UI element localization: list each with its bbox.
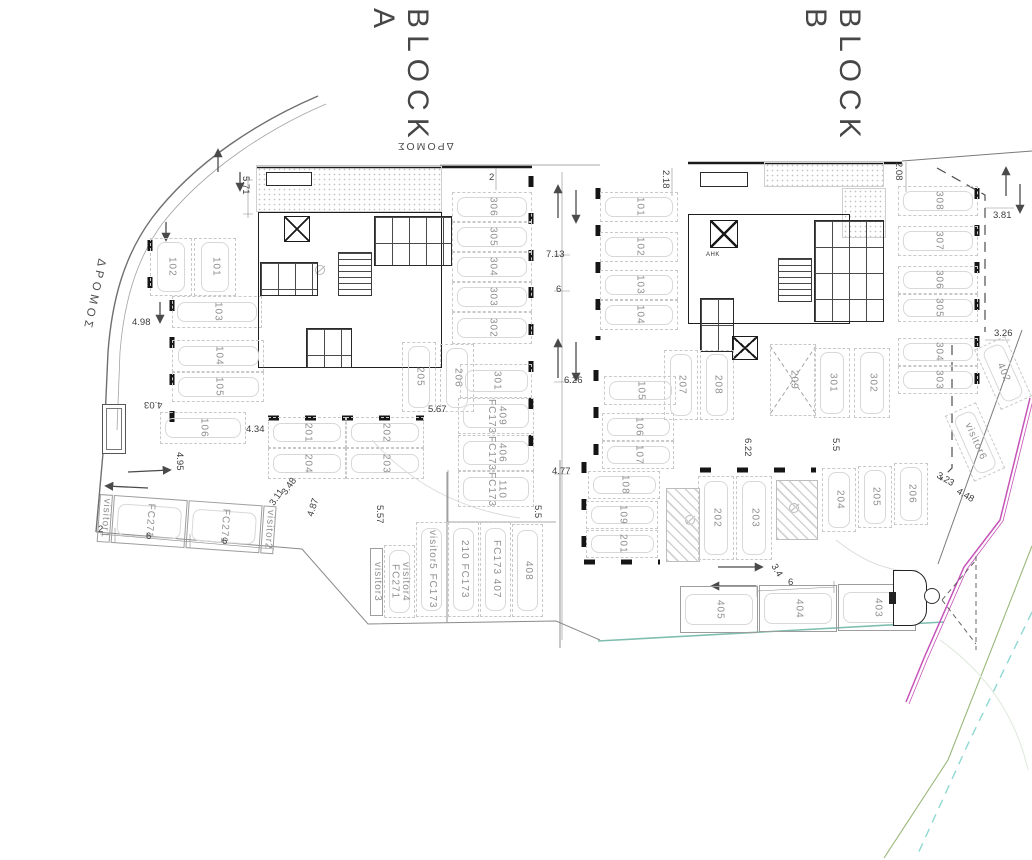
parking-space: 303 bbox=[898, 366, 978, 394]
dimension-label: 7.13 bbox=[546, 249, 565, 260]
parking-space: 204 bbox=[268, 448, 346, 479]
dimension-label: 4.03 bbox=[144, 399, 163, 410]
parking-space: 302 bbox=[452, 312, 532, 344]
parking-space-crossed: 209 bbox=[770, 344, 816, 416]
lift-a-icon bbox=[284, 216, 310, 242]
parking-space: 306 bbox=[898, 266, 978, 294]
parking-space: 408 bbox=[512, 524, 543, 617]
parking-space: 203 bbox=[346, 448, 424, 479]
storage-cells-b2 bbox=[700, 298, 734, 352]
parking-space: visitor5 FC173 bbox=[416, 522, 447, 617]
parking-space: 201 bbox=[268, 417, 346, 448]
landscape-curve bbox=[836, 540, 918, 571]
parking-space: FC173 407 bbox=[480, 522, 511, 617]
parking-floor-plan: BLOCK A BLOCK B ΔΡΟΜΟΣ ΔΡΟΜΟΣ ΑΗΚ 102 10… bbox=[0, 0, 1032, 860]
parking-space: 306 bbox=[452, 192, 532, 222]
stairs-b-icon bbox=[778, 258, 812, 302]
lift-b2-icon bbox=[732, 336, 758, 360]
top-right-boundary bbox=[902, 151, 1032, 161]
hatch-zone-b2 bbox=[776, 480, 818, 540]
parking-space: 101 bbox=[600, 192, 678, 222]
dimension-label: 6.26 bbox=[564, 375, 583, 386]
dimension-label: 6 bbox=[222, 536, 227, 547]
storage-cells-a2 bbox=[260, 262, 318, 296]
parking-space: 303 bbox=[452, 282, 532, 312]
parking-space: 102 bbox=[600, 232, 678, 262]
storage-cells-a1 bbox=[374, 216, 452, 266]
utility-box bbox=[102, 404, 126, 454]
parking-space: 301 bbox=[460, 364, 532, 398]
road-label-top: ΔΡΟΜΟΣ bbox=[396, 140, 454, 152]
parking-space: 404 bbox=[759, 585, 837, 632]
parking-space: 308 bbox=[898, 186, 978, 216]
block-a-title: BLOCK A bbox=[366, 8, 434, 158]
parking-space: 206 bbox=[894, 463, 928, 525]
dimension-label: 5.67 bbox=[428, 404, 447, 415]
parking-space: 302 bbox=[854, 348, 890, 418]
block-b-title: BLOCK B bbox=[798, 8, 866, 158]
dimension-label: 4.95 bbox=[174, 452, 185, 471]
parking-space: 204 bbox=[822, 468, 856, 532]
dimension-label: 4.77 bbox=[552, 466, 571, 477]
parking-space: 103 bbox=[600, 270, 678, 300]
parking-space: 102 bbox=[150, 238, 192, 296]
lift-b-icon bbox=[710, 220, 738, 248]
entry-gate-circle bbox=[924, 588, 940, 604]
dimension-label: 6 bbox=[146, 531, 151, 542]
parking-space: 207 bbox=[664, 350, 698, 420]
parking-space: 406 FC173 bbox=[458, 435, 534, 471]
parking-space: visitor2 bbox=[260, 505, 276, 554]
parking-space: 201 bbox=[586, 530, 658, 558]
cyan-dashed-line bbox=[916, 612, 1032, 858]
dimension-label: 3.26 bbox=[994, 328, 1013, 339]
ahk-room-label: ΑΗΚ bbox=[706, 252, 720, 258]
parking-space: 109 bbox=[586, 501, 658, 529]
parking-space: visitor4 FC271 bbox=[384, 545, 415, 618]
dimension-label: 4.34 bbox=[246, 424, 265, 435]
storage-cells-a3 bbox=[306, 328, 352, 368]
dimension-label: 5.71 bbox=[240, 176, 251, 195]
parking-space: 104 bbox=[600, 300, 678, 330]
parking-space: 105 bbox=[172, 372, 264, 402]
dimension-label: 2 bbox=[98, 524, 103, 535]
dimension-label: 4.98 bbox=[132, 317, 151, 328]
parking-space: 304 bbox=[898, 338, 978, 366]
dimension-label: 5.5 bbox=[532, 505, 543, 518]
parking-space: 106 bbox=[160, 412, 246, 444]
landscape-curve bbox=[940, 640, 1028, 770]
dimension-label: 2.18 bbox=[660, 170, 671, 189]
hatch-zone-b1 bbox=[666, 488, 700, 562]
storage-cells-b1 bbox=[814, 220, 884, 322]
entry-gate-post bbox=[889, 592, 896, 604]
parking-space: 409 FC173 bbox=[458, 398, 534, 434]
parking-space: 210 FC173 bbox=[448, 522, 479, 617]
parking-space: 208 bbox=[700, 350, 734, 420]
dimension-label: 6 bbox=[788, 577, 793, 588]
parking-space: 202 bbox=[346, 417, 424, 448]
parking-space: 305 bbox=[452, 222, 532, 252]
parking-space: 104 bbox=[172, 340, 264, 372]
entry-gate bbox=[893, 570, 927, 626]
parking-space: visitor3 bbox=[370, 548, 383, 616]
parking-space: 305 bbox=[898, 294, 978, 322]
parking-space: 304 bbox=[452, 252, 532, 282]
parking-space: 203 bbox=[736, 476, 772, 560]
dimension-label: 6.22 bbox=[742, 438, 753, 457]
dimension-label: 2.08 bbox=[893, 162, 904, 181]
parking-space: 108 bbox=[588, 471, 660, 499]
dimension-label: 3.81 bbox=[993, 210, 1012, 221]
parking-space: 202 bbox=[698, 476, 734, 560]
gate-sight-lines bbox=[942, 556, 976, 650]
dimension-label: 2 bbox=[489, 172, 494, 183]
parking-space: 101 bbox=[194, 238, 236, 296]
dimension-label: 5.5 bbox=[830, 438, 841, 451]
parking-space: 307 bbox=[898, 226, 978, 256]
stairs-a-icon bbox=[338, 252, 372, 296]
parking-space: 103 bbox=[172, 296, 262, 328]
parking-space: 107 bbox=[602, 441, 674, 469]
parking-space: 301 bbox=[814, 348, 850, 418]
hatch-strip-b1 bbox=[764, 162, 884, 187]
parking-space: 205 bbox=[858, 466, 892, 528]
dimension-label: 6 bbox=[556, 284, 561, 295]
parking-space: 110 FC173 bbox=[458, 471, 534, 507]
vent-box-b bbox=[700, 172, 748, 187]
dimension-label: 5.57 bbox=[374, 505, 385, 524]
parking-space: 405 bbox=[680, 586, 758, 633]
vent-box-a bbox=[266, 172, 312, 186]
parking-space: 205 bbox=[402, 342, 436, 412]
